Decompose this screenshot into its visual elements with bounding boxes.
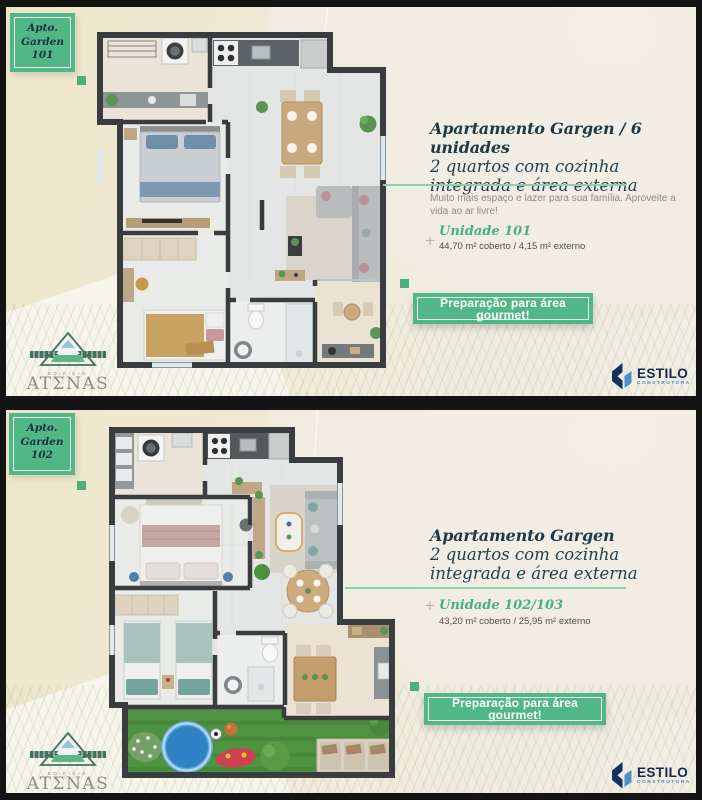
cta-label: Preparação para área gourmet! <box>428 697 602 721</box>
cta-label: Preparação para área gourmet! <box>417 297 589 320</box>
estilo-name-label: ESTILO <box>637 766 691 779</box>
estilo-mark-icon <box>612 363 632 390</box>
kitchen-area <box>207 433 292 459</box>
plus-mark-icon: + <box>425 232 435 249</box>
estilo-name-label: ESTILO <box>637 367 691 380</box>
gourmet-cta-button[interactable]: Preparação para área gourmet! <box>424 693 606 725</box>
unit-label: Unidade 101 <box>439 224 531 239</box>
panel-title: Apartamento Gargen <box>430 526 696 545</box>
floor-plan-101 <box>97 25 387 371</box>
estilo-tagline-label: CONSTRUTORA <box>637 780 691 785</box>
unit-specs: 43,20 m² coberto / 25,95 m² externo <box>439 616 591 627</box>
atenas-name-label: ATΣNAS <box>20 776 116 793</box>
unit-label: Unidade 102/103 <box>439 598 563 613</box>
badge-line: Garden <box>21 36 64 48</box>
badge-line: 101 <box>32 49 54 61</box>
estilo-logo: ESTILO CONSTRUTORA <box>612 762 691 789</box>
estilo-mark-icon <box>612 762 632 789</box>
flyer-panel-101: Apto. Garden 101 <box>6 7 696 396</box>
atenas-logo: EDIFÍCIO ATΣNAS <box>20 732 116 793</box>
atenas-name-label: ATΣNAS <box>20 376 116 393</box>
unit-badge-101: Apto. Garden 101 <box>10 13 75 72</box>
decorative-square <box>77 76 86 85</box>
flyer-page: { "colors": { "green": "#52b787", "navy"… <box>0 0 702 800</box>
badge-line: 102 <box>31 449 53 461</box>
unit-badge-102: Apto. Garden 102 <box>9 413 75 475</box>
decorative-square <box>410 682 419 691</box>
badge-line: Apto. <box>27 22 58 34</box>
panel-title: Apartamento Gargen / 6 unidades <box>430 119 696 157</box>
unit-specs: 44,70 m² coberto / 4,15 m² externo <box>439 241 585 252</box>
atenas-logo: EDIFÍCIO ATΣNAS <box>20 332 116 393</box>
kitchen-area <box>213 40 329 68</box>
floor-plan-102 <box>109 422 395 778</box>
green-divider <box>383 184 626 186</box>
green-divider <box>345 587 626 589</box>
panel-subtitle: 2 quartos com cozinha integrada e área e… <box>430 545 686 583</box>
decorative-square <box>77 481 86 490</box>
atenas-mark-icon <box>20 732 116 768</box>
decorative-square <box>400 279 409 288</box>
flyer-panel-102: Apto. Garden 102 <box>6 410 696 793</box>
estilo-tagline-label: CONSTRUTORA <box>637 381 691 386</box>
plus-mark-icon: + <box>425 597 435 614</box>
atenas-mark-icon <box>20 332 116 368</box>
panel-description: Muito mais espaço e lazer para sua famíl… <box>430 193 690 218</box>
estilo-logo: ESTILO CONSTRUTORA <box>612 363 691 390</box>
badge-line: Garden <box>21 436 64 448</box>
badge-line: Apto. <box>27 422 58 434</box>
text-block-102: Apartamento Gargen 2 quartos com cozinha… <box>430 526 696 583</box>
gourmet-cta-button[interactable]: Preparação para área gourmet! <box>413 293 593 324</box>
panel-subtitle: 2 quartos com cozinha integrada e área e… <box>430 157 686 195</box>
